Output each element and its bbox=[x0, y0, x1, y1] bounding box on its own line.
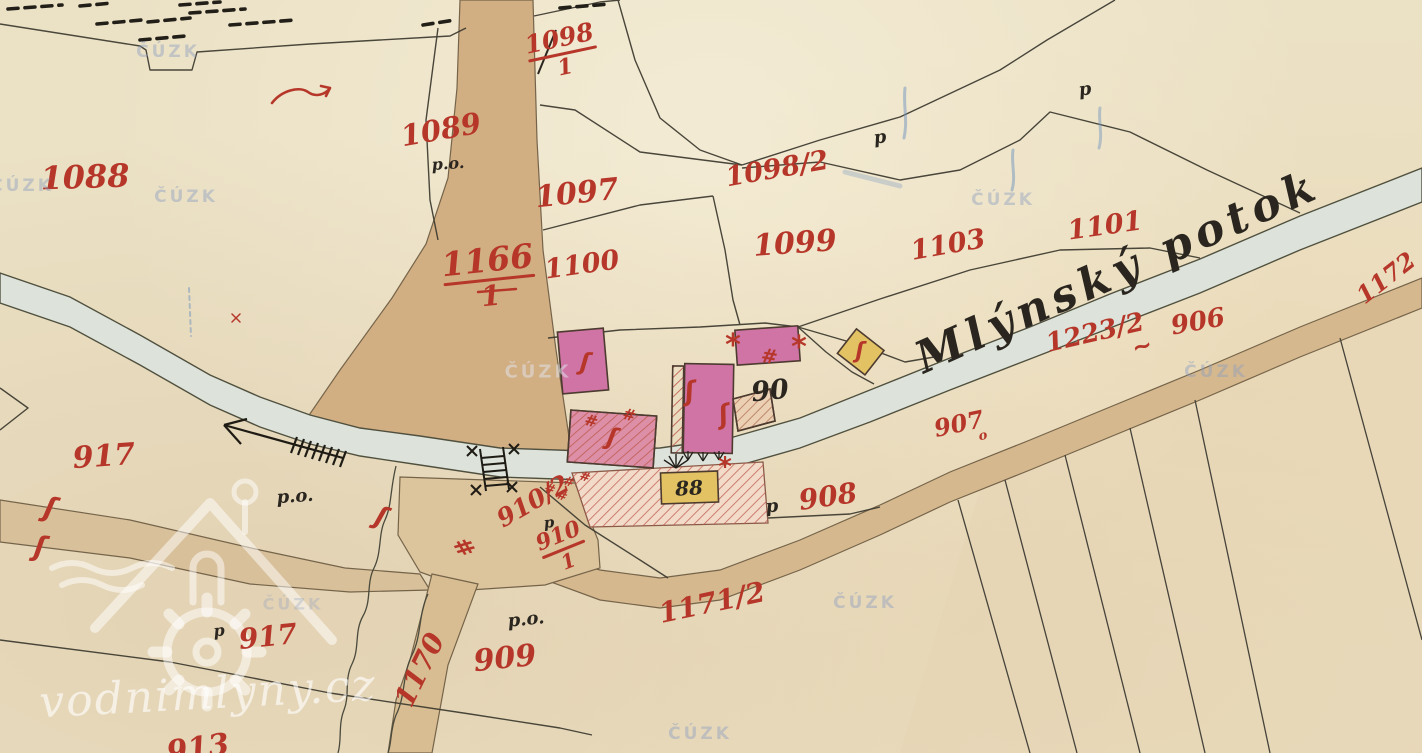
cuzk-watermark: ČÚZK bbox=[154, 187, 218, 207]
abbrev-p-1: p bbox=[873, 128, 888, 148]
abbrev-p-3: p bbox=[765, 497, 779, 516]
cuzk-watermark: ČÚZK bbox=[136, 42, 200, 62]
cuzk-watermark: ČÚZK bbox=[1184, 362, 1248, 382]
cuzk-watermark: ČÚZK bbox=[971, 190, 1035, 210]
fraction-denominator: 1 bbox=[555, 55, 575, 80]
cadastral-map-canvas[interactable]: 1088 1089 1098 1 1097 1098/2 1099 1100 1… bbox=[0, 0, 1422, 753]
cuzk-watermark: ČÚZK bbox=[505, 362, 572, 383]
parcel-label-917-a: 917 bbox=[72, 440, 137, 474]
red-asterisk-mark: * bbox=[791, 333, 807, 363]
parcel-label-913: 913 bbox=[165, 730, 231, 753]
red-squiggle-top bbox=[272, 86, 330, 103]
abbrev-po-1: p.o. bbox=[431, 155, 465, 173]
parcel-label-1097: 1097 bbox=[534, 175, 620, 214]
abbrev-p-2: p bbox=[1078, 80, 1093, 100]
blue-pencil-marks bbox=[189, 88, 1101, 336]
cuzk-watermark: ČÚZK bbox=[668, 724, 732, 744]
fraction-denominator: 1 bbox=[558, 549, 578, 573]
abbrev-po-3: p.o. bbox=[507, 609, 545, 631]
house-number-88: 88 bbox=[675, 477, 704, 498]
red-squiggle-mark: ʃ bbox=[579, 350, 591, 375]
house-number-90: 90 bbox=[750, 376, 790, 407]
red-asterisk-mark: * bbox=[718, 454, 732, 480]
cuzk-watermark: ČÚZK bbox=[263, 595, 324, 614]
abbrev-po-2: p.o. bbox=[276, 487, 314, 508]
abbrev-p-5: p bbox=[213, 622, 226, 639]
red-x-mark bbox=[232, 314, 240, 322]
parcel-label-908: 908 bbox=[797, 479, 859, 515]
red-squiggle-mark: ʃ bbox=[855, 341, 864, 363]
cuzk-watermark: ČÚZK bbox=[0, 176, 54, 196]
parcel-label-1166-1: 1166 1 bbox=[440, 239, 538, 315]
parcel-label-1099: 1099 bbox=[752, 226, 837, 262]
parcel-label-917-b: 917 bbox=[237, 620, 298, 654]
red-asterisk-mark: * bbox=[725, 331, 741, 361]
parcel-label-909: 909 bbox=[472, 641, 537, 677]
fraction-denominator: 1 bbox=[480, 281, 502, 311]
abbrev-p-4: p bbox=[543, 515, 555, 531]
cuzk-watermark: ČÚZK bbox=[833, 593, 897, 613]
